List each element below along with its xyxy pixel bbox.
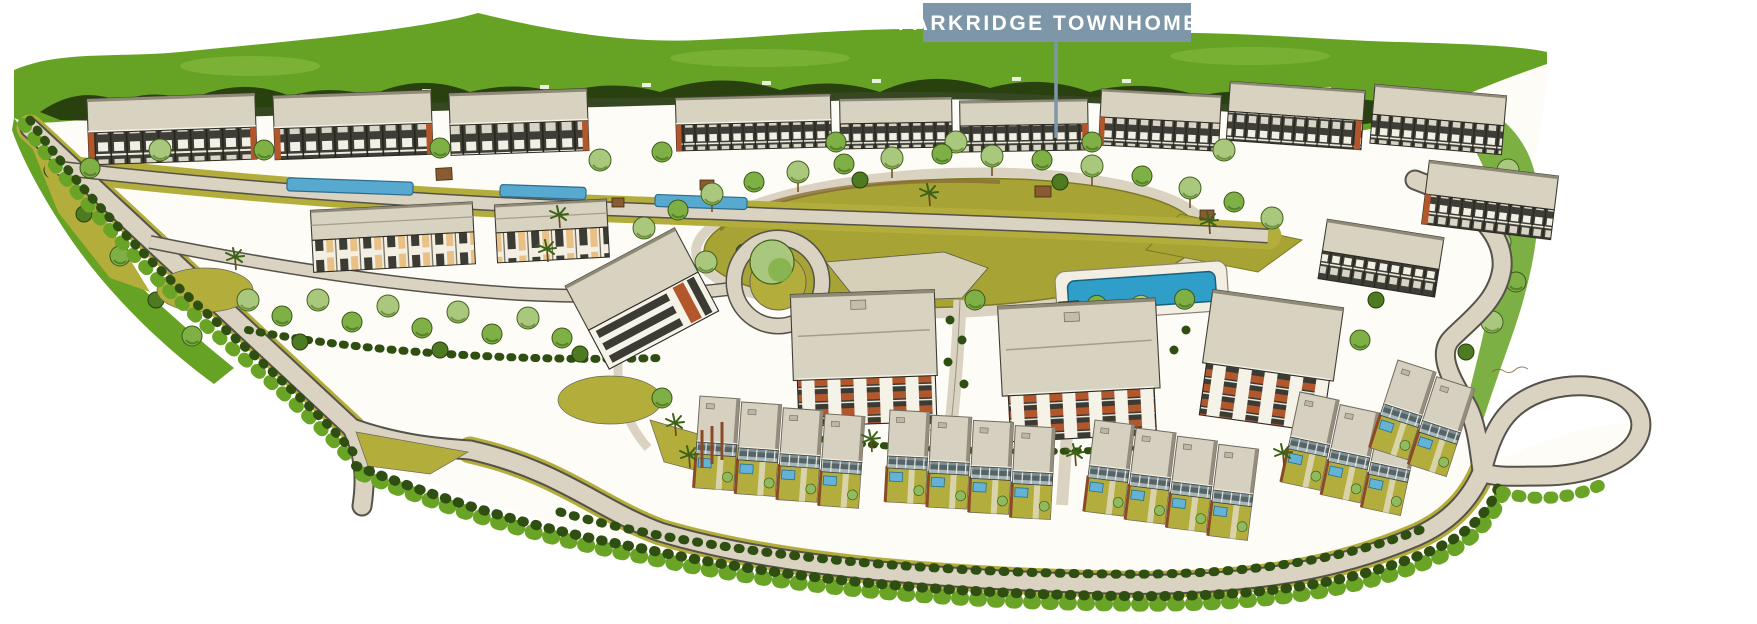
site-plan-rendering: PARKRIDGE TOWNHOMES bbox=[0, 0, 1757, 624]
illustration-canvas: PARKRIDGE TOWNHOMES bbox=[0, 0, 1757, 624]
building-block-8 bbox=[1226, 81, 1365, 149]
building-block-1 bbox=[87, 93, 257, 165]
apartment-building-2 bbox=[998, 298, 1163, 442]
building-block-6-parkridge bbox=[960, 99, 1089, 152]
building-block-7 bbox=[1099, 89, 1222, 151]
building-block-9 bbox=[1370, 84, 1507, 154]
building-block-2 bbox=[273, 90, 433, 159]
building-block-5 bbox=[840, 97, 953, 149]
apartment-building-1 bbox=[790, 290, 939, 427]
building-block-3 bbox=[449, 89, 589, 156]
townhome-row-west bbox=[310, 202, 475, 272]
building-block-4 bbox=[675, 94, 831, 151]
project-title: PARKRIDGE TOWNHOMES bbox=[898, 12, 1217, 35]
townhome-cluster-2 bbox=[883, 410, 1056, 520]
